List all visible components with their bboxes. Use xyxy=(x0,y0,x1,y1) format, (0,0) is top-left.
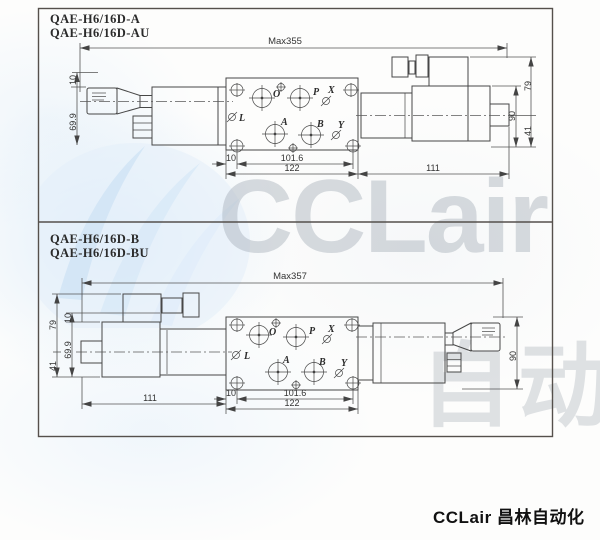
b-label-y: Y xyxy=(341,358,348,369)
model-label-a1: QAE-H6/16D-A xyxy=(50,12,140,26)
a-label-a: A xyxy=(280,117,288,128)
a-dim-solenoid-length: 111 xyxy=(426,163,440,173)
a-label-l: L xyxy=(238,113,245,124)
b-bottom-dims: 111 10 101.6 122 xyxy=(82,377,358,414)
a-valve-body-left xyxy=(152,87,226,145)
a-adjust-knob-assembly xyxy=(80,87,233,145)
a-dim-solenoid-height: 90 xyxy=(507,111,517,121)
b-label-a: A xyxy=(282,355,290,366)
b-dim-solenoid-top: 79 xyxy=(48,320,58,330)
a-label-b: B xyxy=(316,119,324,130)
b-label-x: X xyxy=(327,324,335,335)
b-overall-dim: Max357 xyxy=(82,271,503,322)
b-dim-knob-offset: 10 xyxy=(63,313,73,323)
a-label-p: P xyxy=(313,87,320,98)
a-left-dims: 10 69.9 xyxy=(68,73,98,146)
b-mounting-block: O P X L A B Y xyxy=(226,317,361,390)
a-dim-solenoid-top: 79 xyxy=(523,81,533,91)
a-port-labels: O P X L A B Y xyxy=(238,85,345,131)
b-solenoid-assembly xyxy=(76,293,232,377)
footer-brand-text: CCLair 昌林自动化 xyxy=(433,503,584,528)
b-solenoid-body xyxy=(102,322,160,377)
b-dim-valve-height: 90 xyxy=(508,351,518,361)
b-connector-box xyxy=(123,294,161,322)
b-dim-bolt-offset: 10 xyxy=(226,388,236,398)
b-dim-solenoid-bottom: 41 xyxy=(48,361,58,371)
b-dim-block-length: 122 xyxy=(284,398,299,408)
a-block-outline xyxy=(226,78,358,150)
b-label-l: L xyxy=(243,351,250,362)
a-solenoid-body xyxy=(412,86,490,141)
model-label-a2: QAE-H6/16D-AU xyxy=(50,26,150,40)
b-valve-body-right xyxy=(373,323,445,383)
drawing-b: QAE-H6/16D-B QAE-H6/16D-BU Max357 xyxy=(48,232,523,414)
model-label-b1: QAE-H6/16D-B xyxy=(50,232,140,246)
a-dim-bolt-spacing: 101.6 xyxy=(281,153,304,163)
drawing-a: QAE-H6/16D-A QAE-H6/16D-AU Max355 xyxy=(50,12,536,179)
a-solenoid-assembly xyxy=(356,55,514,141)
a-label-o: O xyxy=(273,89,280,100)
b-valve-flange xyxy=(358,326,373,380)
b-connector-pin2 xyxy=(183,293,199,317)
a-lock-nut xyxy=(133,116,152,138)
b-dim-solenoid-length: 111 xyxy=(143,393,157,403)
a-mounting-block: O P X L A B Y xyxy=(226,78,361,153)
sheet-frame xyxy=(39,9,553,437)
a-label-y: Y xyxy=(338,120,345,131)
a-knob-taper xyxy=(117,88,140,114)
b-label-b: B xyxy=(318,357,326,368)
b-connector-pin1 xyxy=(162,298,182,313)
b-dim-knob-height: 69.9 xyxy=(63,341,73,359)
a-dim-knob-offset: 10 xyxy=(68,75,78,85)
a-connector-pin1 xyxy=(392,57,408,77)
a-dim-knob-height: 69.9 xyxy=(68,113,78,131)
b-lock-nut xyxy=(447,353,461,372)
b-left-dims: 79 41 10 69.9 xyxy=(48,294,160,377)
b-knob-stem xyxy=(445,333,453,345)
model-label-b2: QAE-H6/16D-BU xyxy=(50,246,149,260)
b-label-o: O xyxy=(269,327,276,338)
a-connector-pin3 xyxy=(416,55,428,77)
a-bolt-holes xyxy=(229,83,361,153)
a-connector-pin2 xyxy=(409,61,415,74)
a-max-length: Max355 xyxy=(268,36,302,47)
b-adjust-knob-assembly xyxy=(356,323,507,383)
a-dim-solenoid-bottom: 41 xyxy=(523,126,533,136)
b-dim-bolt-spacing: 101.6 xyxy=(284,388,307,398)
technical-drawing: QAE-H6/16D-A QAE-H6/16D-AU Max355 xyxy=(0,0,600,540)
a-connector-box xyxy=(429,57,468,86)
b-max-length: Max357 xyxy=(273,271,307,282)
a-label-x: X xyxy=(327,85,335,96)
a-dim-bolt-offset: 10 xyxy=(226,153,236,163)
a-right-dims: 90 79 41 xyxy=(470,57,536,147)
b-label-p: P xyxy=(309,326,316,337)
a-dim-block-length: 122 xyxy=(284,163,299,173)
a-knob xyxy=(87,88,117,114)
a-overall-dim: Max355 xyxy=(80,36,507,92)
